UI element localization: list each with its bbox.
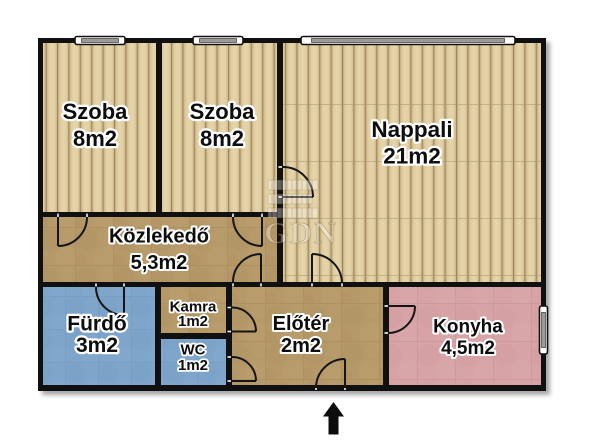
svg-text:Fürdő: Fürdő <box>67 313 126 336</box>
svg-text:WC: WC <box>181 341 206 358</box>
svg-text:Közlekedő: Közlekedő <box>109 226 209 248</box>
svg-text:8m2: 8m2 <box>73 126 117 151</box>
svg-text:Konyha: Konyha <box>433 317 503 338</box>
svg-text:21m2: 21m2 <box>383 144 441 169</box>
svg-text:2m2: 2m2 <box>281 335 321 357</box>
svg-text:3m2: 3m2 <box>76 334 118 357</box>
svg-text:Nappali: Nappali <box>371 117 452 142</box>
svg-text:GDN: GDN <box>264 215 337 250</box>
svg-text:1m2: 1m2 <box>178 313 208 330</box>
svg-text:Szoba: Szoba <box>190 99 256 124</box>
svg-text:4,5m2: 4,5m2 <box>441 338 495 359</box>
svg-text:Előtér: Előtér <box>273 313 330 335</box>
svg-text:8m2: 8m2 <box>200 126 244 151</box>
svg-text:1m2: 1m2 <box>178 357 208 374</box>
svg-text:Szoba: Szoba <box>63 99 129 124</box>
svg-text:5,3m2: 5,3m2 <box>131 252 188 274</box>
